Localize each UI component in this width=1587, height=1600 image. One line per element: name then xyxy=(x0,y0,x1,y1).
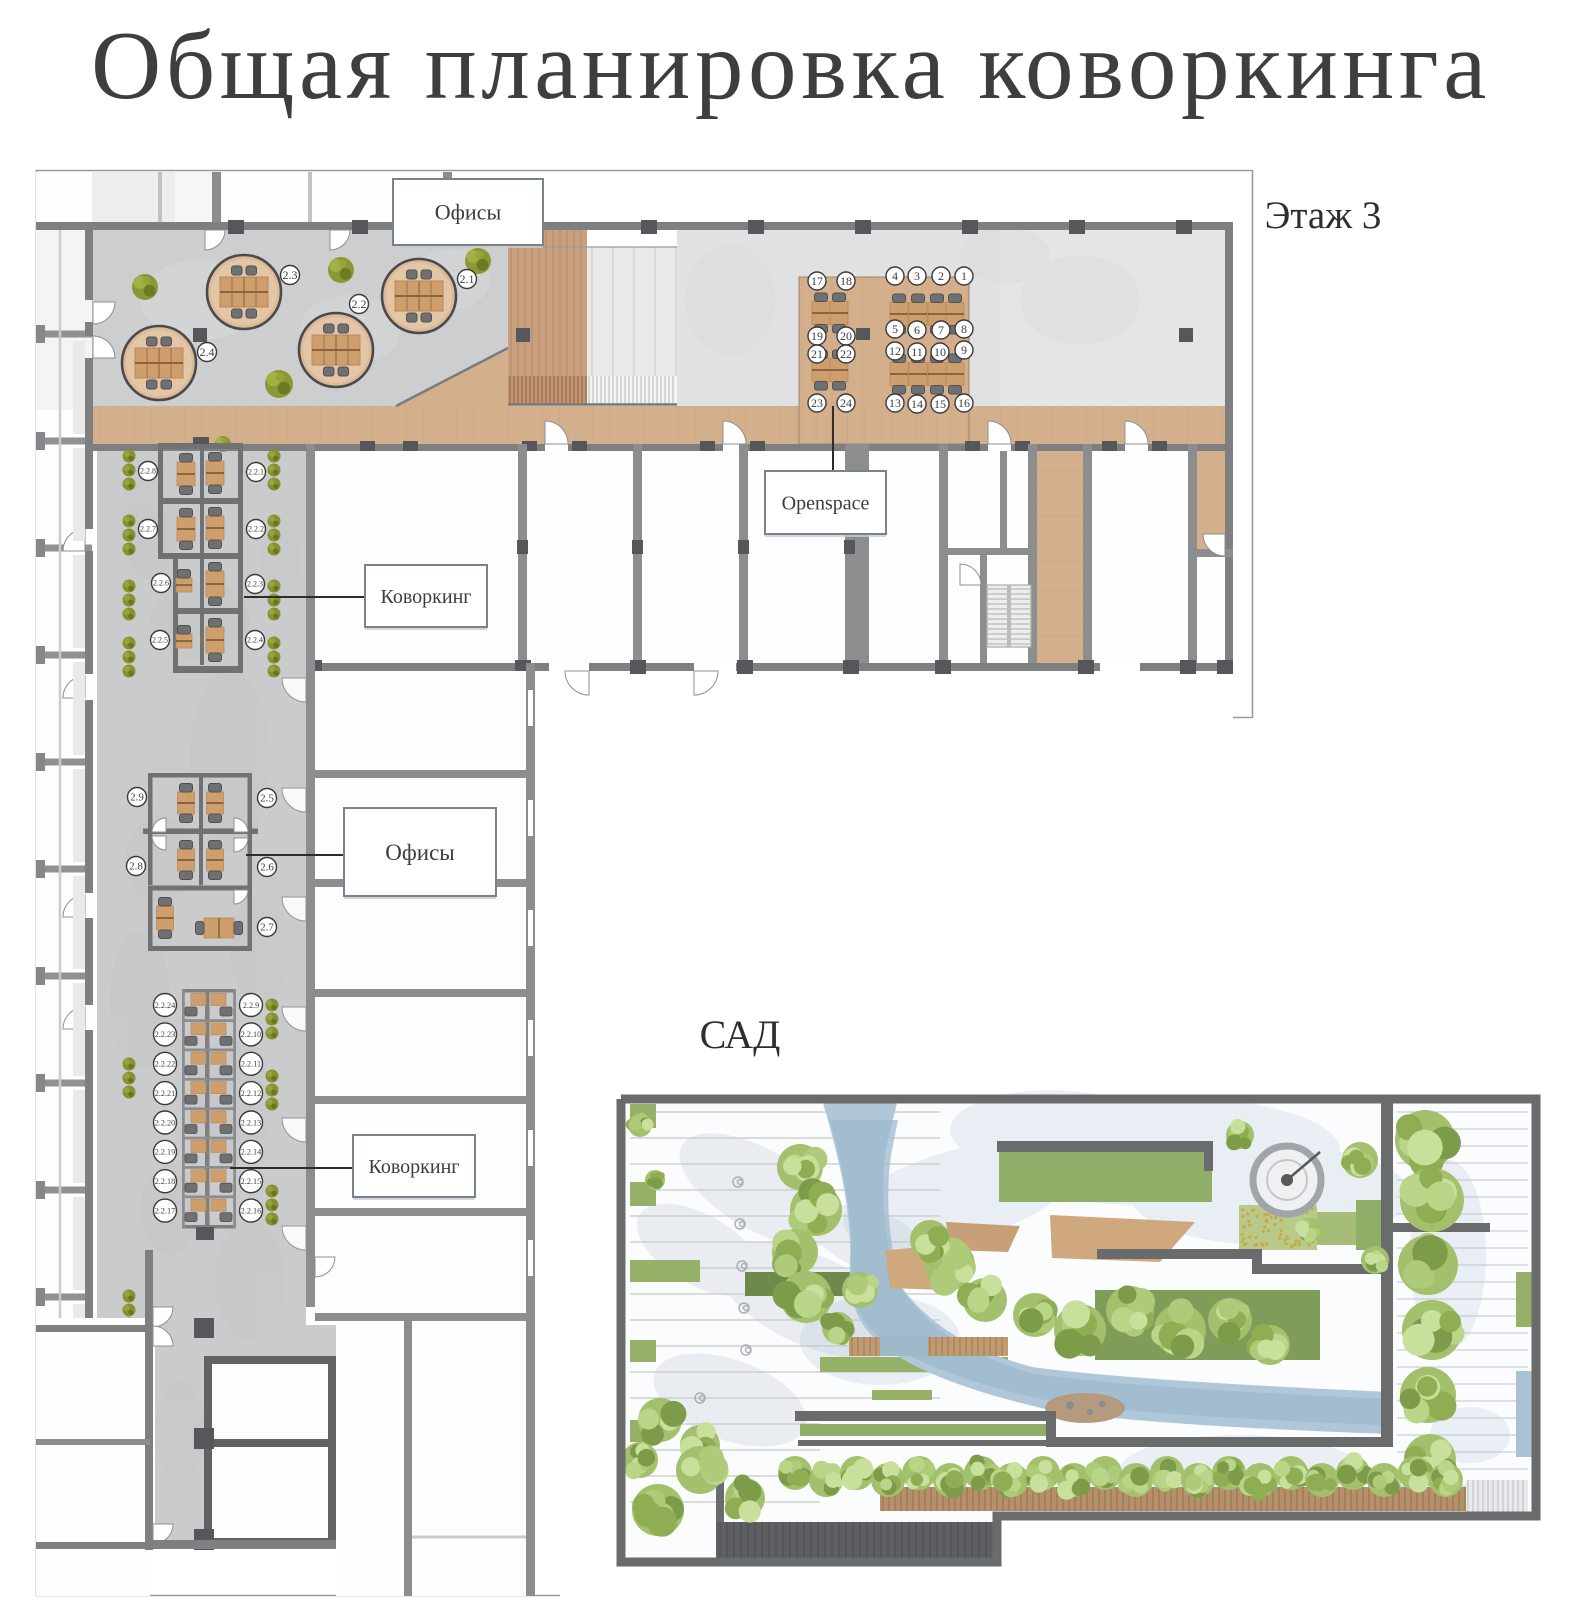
svg-text:2.2.14: 2.2.14 xyxy=(241,1148,261,1157)
svg-text:2.2.18: 2.2.18 xyxy=(155,1177,175,1186)
svg-text:2.2.24: 2.2.24 xyxy=(155,1001,175,1010)
svg-text:2.2.21: 2.2.21 xyxy=(155,1089,175,1098)
svg-text:2.2.1: 2.2.1 xyxy=(248,468,264,477)
svg-text:7: 7 xyxy=(938,323,944,337)
svg-text:4: 4 xyxy=(892,269,898,283)
svg-text:2.2.4: 2.2.4 xyxy=(247,636,263,645)
svg-text:2.2.16: 2.2.16 xyxy=(241,1206,261,1215)
svg-text:15: 15 xyxy=(934,397,946,411)
svg-text:Офисы: Офисы xyxy=(385,840,454,865)
svg-text:16: 16 xyxy=(958,396,970,410)
svg-text:2.2.20: 2.2.20 xyxy=(155,1118,175,1127)
svg-text:2.2.23: 2.2.23 xyxy=(155,1030,175,1039)
svg-text:13: 13 xyxy=(889,396,901,410)
svg-text:2.2.12: 2.2.12 xyxy=(241,1089,261,1098)
svg-text:2.2.17: 2.2.17 xyxy=(155,1206,175,1215)
svg-text:2: 2 xyxy=(938,269,944,283)
svg-text:Openspace: Openspace xyxy=(782,492,870,514)
svg-text:12: 12 xyxy=(889,344,901,358)
svg-text:2.2.13: 2.2.13 xyxy=(241,1118,261,1127)
svg-text:10: 10 xyxy=(934,345,946,359)
svg-text:2.2.7: 2.2.7 xyxy=(140,525,156,534)
svg-text:2.3: 2.3 xyxy=(283,268,298,282)
svg-text:2.2.15: 2.2.15 xyxy=(241,1177,261,1186)
svg-text:2.2.10: 2.2.10 xyxy=(241,1030,261,1039)
svg-text:3: 3 xyxy=(914,269,920,283)
svg-text:8: 8 xyxy=(961,322,967,336)
svg-text:19: 19 xyxy=(811,329,823,343)
svg-text:2.8: 2.8 xyxy=(129,861,143,873)
svg-text:14: 14 xyxy=(911,397,923,411)
svg-text:2.6: 2.6 xyxy=(260,862,274,874)
svg-text:6: 6 xyxy=(914,323,920,337)
svg-text:2.2.19: 2.2.19 xyxy=(155,1148,175,1157)
svg-text:23: 23 xyxy=(811,396,823,410)
svg-text:2.2: 2.2 xyxy=(352,297,367,311)
svg-text:2.1: 2.1 xyxy=(460,272,475,286)
svg-text:2.9: 2.9 xyxy=(130,792,144,804)
svg-text:18: 18 xyxy=(840,274,852,288)
svg-text:2.2.22: 2.2.22 xyxy=(155,1060,175,1069)
svg-text:2.2.11: 2.2.11 xyxy=(241,1060,261,1069)
svg-text:1: 1 xyxy=(961,269,967,283)
svg-text:2.4: 2.4 xyxy=(200,345,215,359)
svg-text:22: 22 xyxy=(840,347,852,361)
svg-text:9: 9 xyxy=(961,343,967,357)
svg-text:2.2.2: 2.2.2 xyxy=(248,525,264,534)
svg-text:2.2.8: 2.2.8 xyxy=(140,467,156,476)
svg-text:24: 24 xyxy=(840,396,852,410)
svg-text:2.5: 2.5 xyxy=(260,793,274,805)
svg-text:20: 20 xyxy=(840,329,852,343)
svg-text:5: 5 xyxy=(892,322,898,336)
svg-text:17: 17 xyxy=(811,274,823,288)
svg-text:2.2.6: 2.2.6 xyxy=(153,579,169,588)
svg-text:Общая планировка коворкинга: Общая планировка коворкинга xyxy=(91,12,1491,119)
svg-text:Коворкинг: Коворкинг xyxy=(381,586,472,608)
svg-text:11: 11 xyxy=(911,345,923,359)
svg-text:2.7: 2.7 xyxy=(260,922,274,934)
svg-text:2.2.9: 2.2.9 xyxy=(243,1001,259,1010)
svg-text:Коворкинг: Коворкинг xyxy=(369,1156,460,1178)
svg-text:2.2.5: 2.2.5 xyxy=(152,636,168,645)
svg-text:САД: САД xyxy=(700,1012,781,1057)
svg-text:Офисы: Офисы xyxy=(435,200,502,225)
svg-text:Этаж 3: Этаж 3 xyxy=(1265,194,1382,237)
svg-text:2.2.3: 2.2.3 xyxy=(247,580,263,589)
svg-text:21: 21 xyxy=(811,347,823,361)
